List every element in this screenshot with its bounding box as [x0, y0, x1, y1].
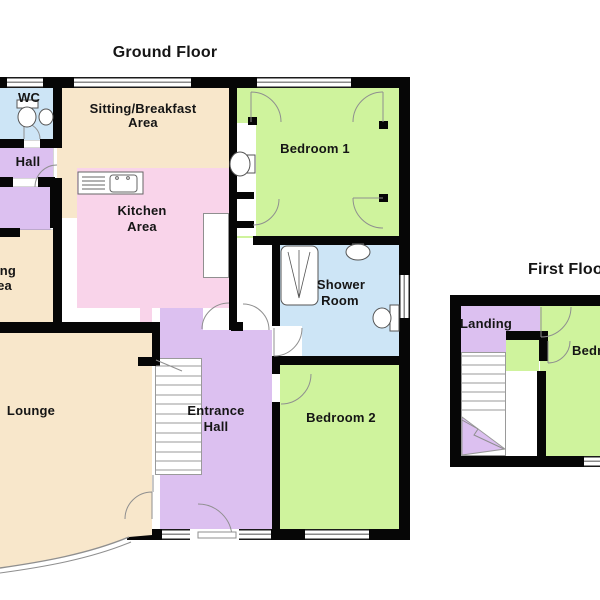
wall [0, 228, 20, 237]
label-shower-2: Room [321, 293, 359, 308]
label-bedroom-3: Bedroom 3 [572, 343, 600, 358]
door-arc-corridor-eh [243, 304, 269, 330]
label-entrance-2: Hall [204, 419, 229, 434]
room-landing-lower [461, 331, 506, 352]
room-bedroom-3 [540, 306, 600, 456]
wall [0, 139, 24, 148]
label-entrance-1: Entrance [187, 403, 244, 418]
window [399, 275, 410, 318]
label-dining-1: Dining [0, 263, 16, 278]
wall [138, 357, 160, 366]
wall [229, 88, 237, 330]
front-door-threshold [190, 529, 239, 540]
window [257, 77, 351, 88]
wall [272, 365, 280, 374]
wall [379, 194, 388, 202]
label-dining-2: Area [0, 278, 12, 293]
label-hall: Hall [16, 154, 41, 169]
window [584, 456, 600, 467]
stair-void [506, 371, 537, 456]
wall [0, 177, 13, 187]
room-lounge [0, 333, 152, 535]
label-bedroom-1: Bedroom 1 [280, 141, 350, 156]
floorplan-page: { "ground_floor": { "title": "Ground Flo… [0, 0, 600, 600]
wall [53, 228, 62, 328]
window [74, 77, 191, 88]
wall [237, 221, 254, 228]
wall [248, 117, 257, 125]
wall [379, 121, 388, 129]
wall [152, 322, 160, 358]
window [305, 529, 369, 540]
label-kitchen-1: Kitchen [117, 203, 166, 218]
room-hall-closet [0, 187, 50, 232]
ground-floor-title: Ground Floor [113, 44, 218, 62]
window [239, 529, 271, 540]
label-kitchen-2: Area [127, 219, 157, 234]
landing-cupboard [506, 340, 539, 371]
label-lounge: Lounge [7, 403, 55, 418]
label-bedroom-2: Bedroom 2 [306, 410, 376, 425]
shower-door-alcove [272, 326, 302, 356]
wall [450, 456, 600, 467]
kitchen-cupboard [203, 213, 229, 278]
wall [237, 192, 254, 199]
label-shower-1: Shower [317, 277, 365, 292]
bedroom1-lobby [237, 123, 256, 236]
room-bedroom-2 [280, 365, 399, 529]
window [7, 77, 43, 88]
room-bedroom-1 [237, 88, 399, 238]
staircase-first [461, 352, 506, 456]
window [162, 529, 190, 540]
label-sitting-1: Sitting/Breakfast [90, 101, 197, 116]
first-floor-title: First Floor [528, 261, 600, 279]
wall [231, 322, 243, 331]
label-landing: Landing [460, 316, 512, 331]
wall [450, 295, 600, 306]
wall [272, 238, 280, 326]
wall [53, 88, 62, 148]
wall [272, 402, 280, 529]
wall [539, 331, 548, 361]
wall [50, 178, 62, 228]
label-sitting-2: Area [128, 115, 158, 130]
wall [537, 371, 546, 456]
label-wc: WC [18, 90, 40, 105]
wall [0, 322, 153, 333]
wall [272, 356, 399, 365]
